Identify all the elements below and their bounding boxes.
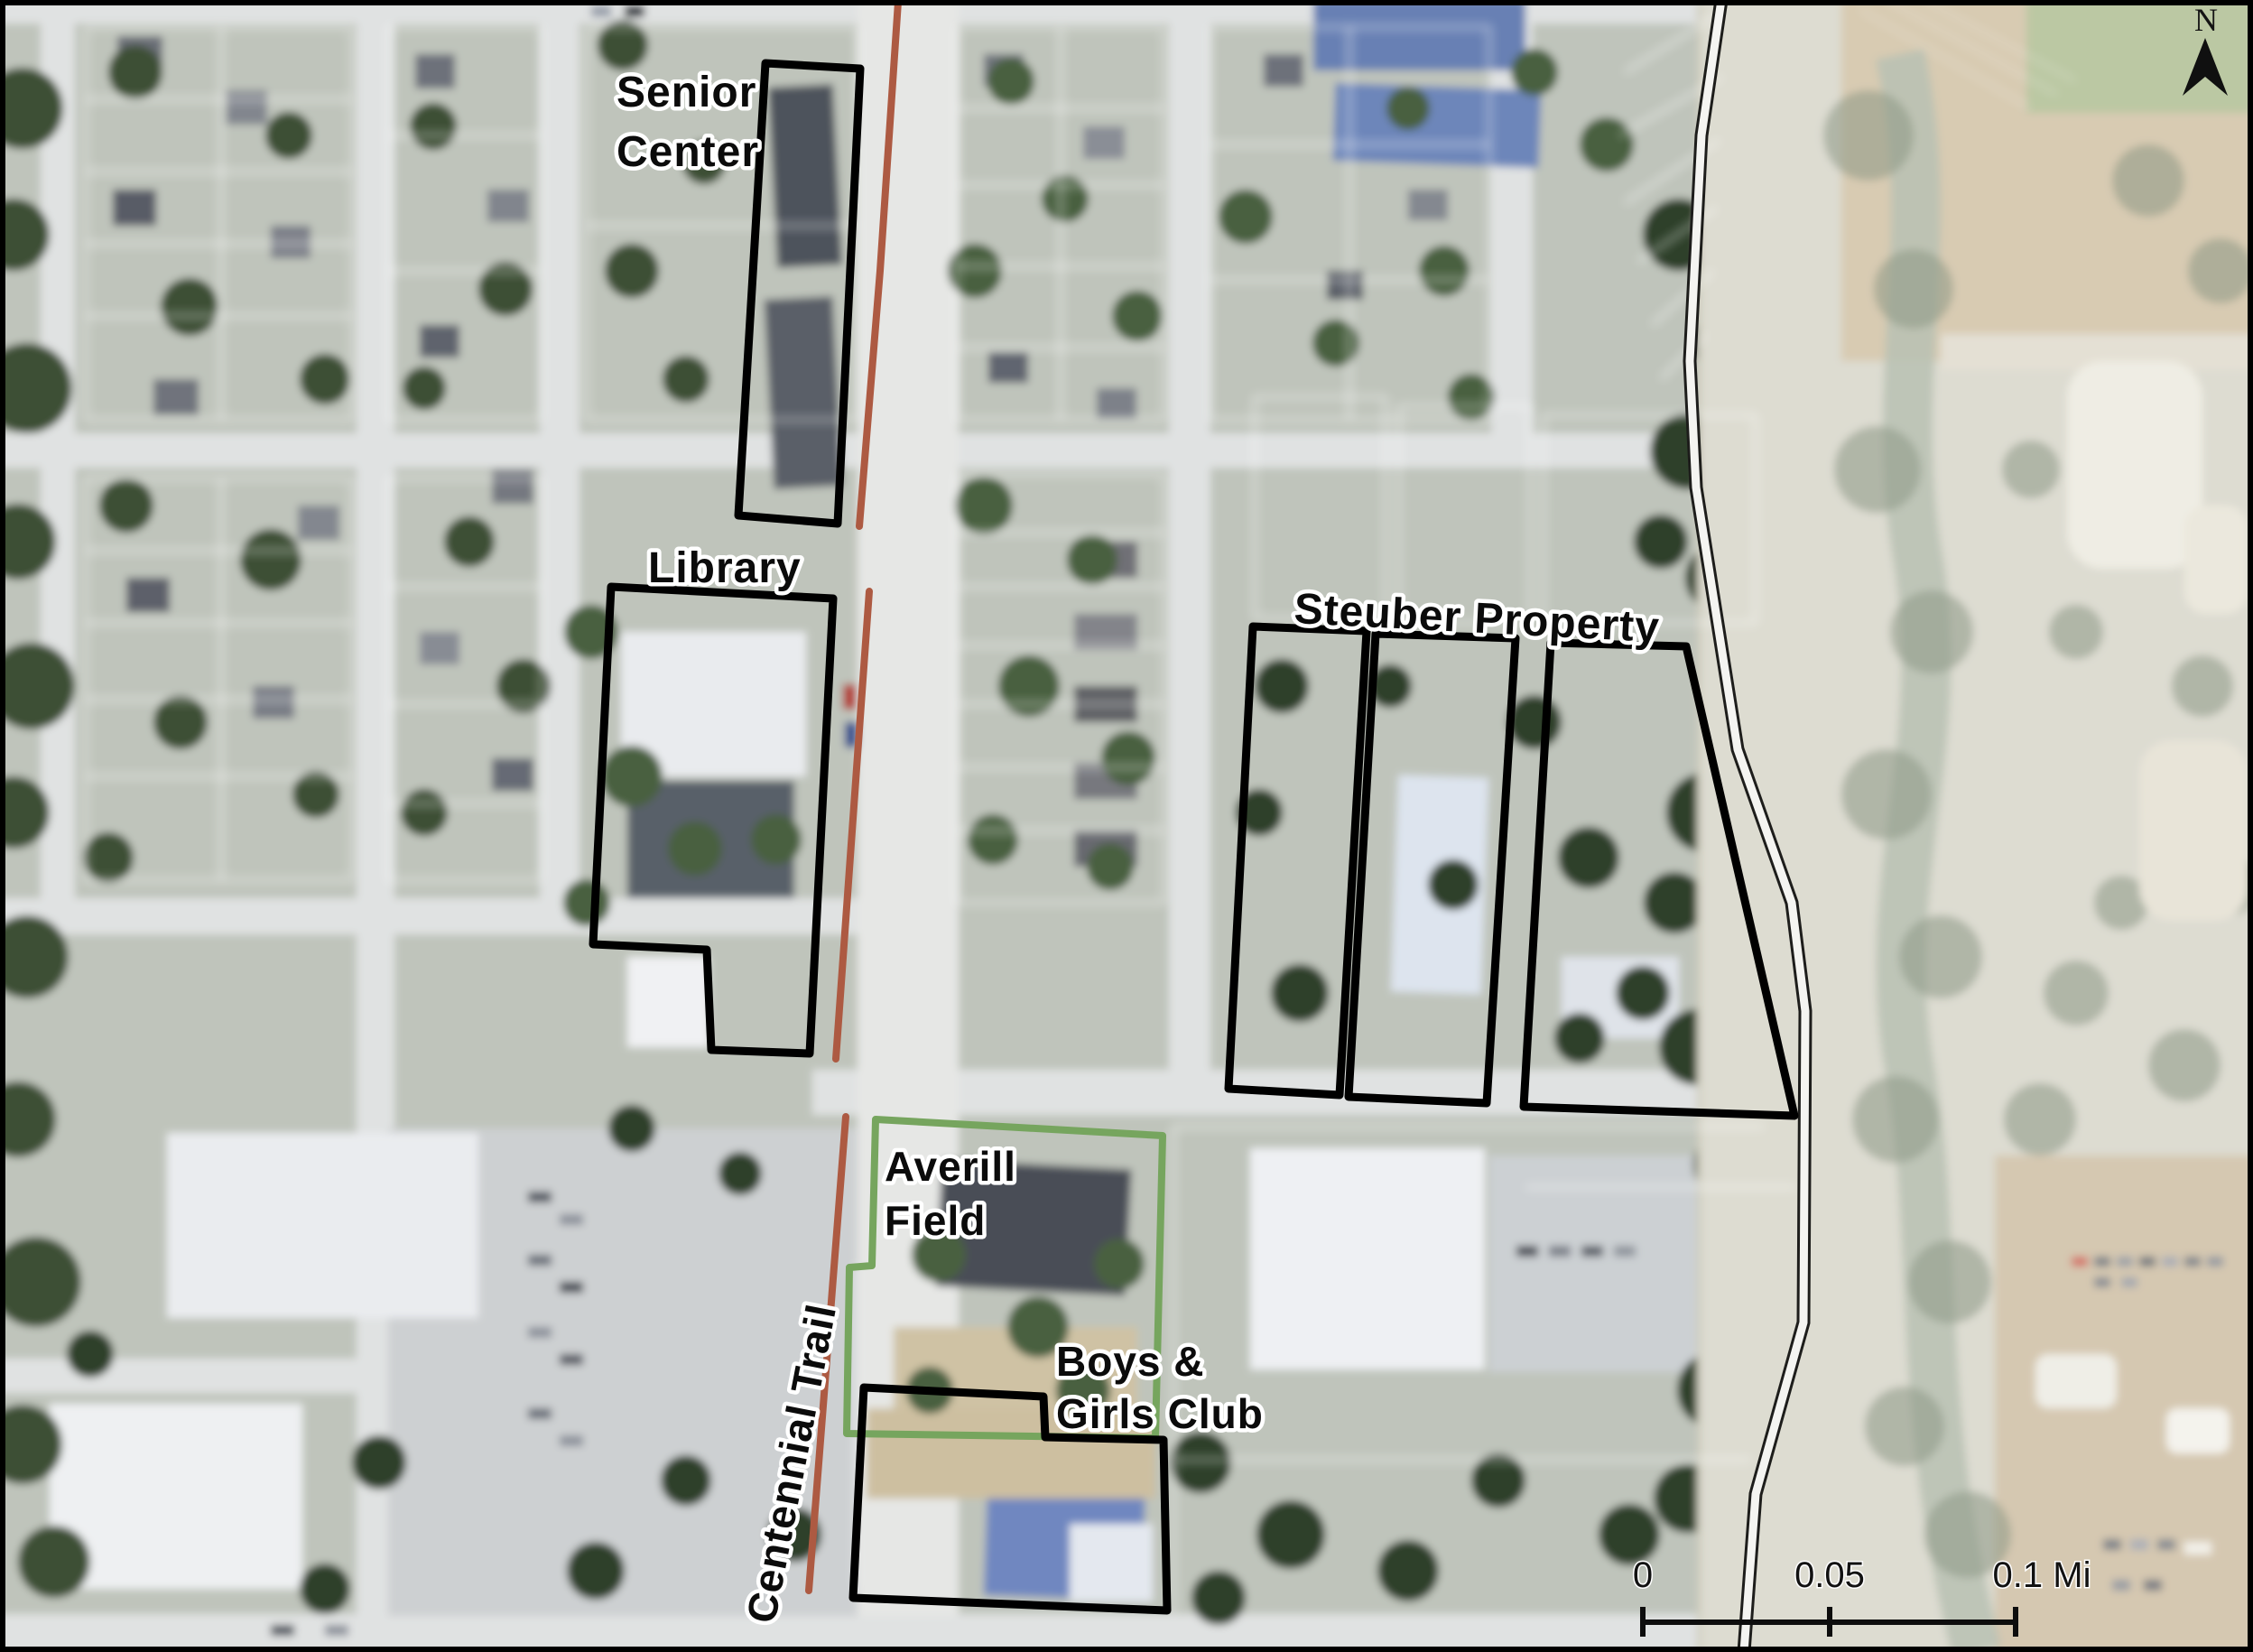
scale-tick-005: 0.05: [1794, 1555, 1865, 1595]
senior-center-label: Senior: [617, 69, 756, 116]
averill-field-label: Averill: [885, 1143, 1016, 1190]
averill-field-label: Field: [885, 1197, 986, 1244]
scale-tick-0: 0: [1633, 1555, 1653, 1595]
senior-center-label: Center: [617, 128, 759, 176]
boys-girls-club-label: Boys &: [1056, 1338, 1204, 1385]
boys-girls-club-label: Girls Club: [1056, 1390, 1264, 1437]
scale-tick-01mi: 0.1 Mi: [1993, 1555, 2091, 1595]
map-canvas: Senior Center Library Steuber Property A…: [0, 0, 2253, 1652]
library-label: Library: [648, 544, 802, 592]
aerial-map: Senior Center Library Steuber Property A…: [0, 0, 2253, 1652]
north-label: N: [2194, 2, 2218, 38]
